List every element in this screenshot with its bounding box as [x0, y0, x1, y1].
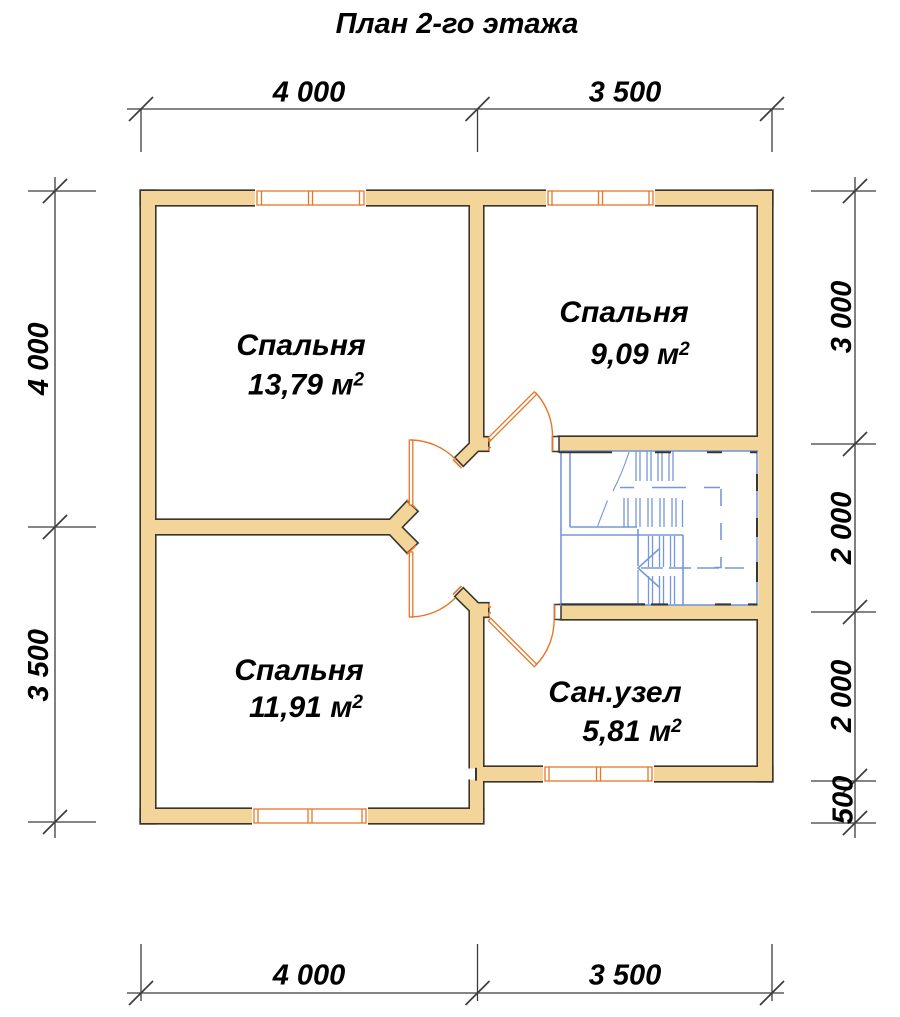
svg-text:Спальня: Спальня [559, 296, 689, 329]
svg-text:4 000: 4 000 [23, 323, 55, 397]
svg-text:9,09 м2: 9,09 м2 [590, 338, 690, 371]
svg-text:Сан.узел: Сан.узел [548, 676, 682, 709]
svg-text:2 000: 2 000 [826, 492, 858, 566]
svg-text:3 500: 3 500 [589, 77, 662, 109]
svg-text:500: 500 [828, 776, 860, 824]
svg-text:3 500: 3 500 [589, 960, 662, 992]
svg-text:3 000: 3 000 [826, 281, 858, 354]
svg-text:5,81 м2: 5,81 м2 [582, 715, 682, 748]
svg-text:План 2-го этажа: План 2-го этажа [336, 8, 579, 40]
svg-text:13,79 м2: 13,79 м2 [248, 369, 365, 402]
svg-text:2 000: 2 000 [826, 660, 858, 734]
svg-text:4 000: 4 000 [272, 960, 346, 992]
svg-text:4 000: 4 000 [272, 77, 346, 109]
svg-text:Спальня: Спальня [234, 654, 364, 687]
svg-text:11,91 м2: 11,91 м2 [249, 691, 363, 724]
svg-text:Спальня: Спальня [236, 329, 366, 362]
svg-text:3 500: 3 500 [23, 629, 55, 702]
